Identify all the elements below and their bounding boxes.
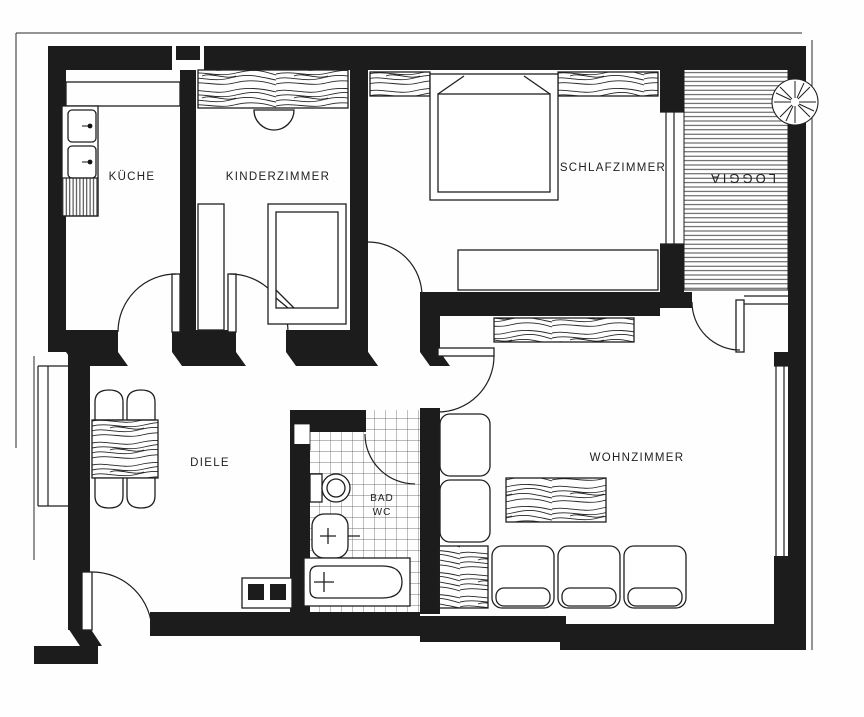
tree-icon <box>772 79 818 125</box>
wall-band-kinder <box>286 330 368 352</box>
single-bed <box>268 204 346 324</box>
kitchen-stove <box>62 178 98 216</box>
room-label-diele: DIELE <box>190 457 230 469</box>
room-label-loggia: LOGGIA <box>708 171 776 186</box>
cabinet-door <box>248 584 264 600</box>
wall-bottom-living-b <box>560 624 800 650</box>
floor-plan-page: KÜCHE KINDERZIMMER SCHLAFZIMMER LOGGIA D… <box>0 0 864 717</box>
wall-bedroom-living <box>424 292 660 316</box>
room-label-kinderzimmer: KINDERZIMMER <box>226 171 330 183</box>
sofa-backrest <box>562 588 616 606</box>
chair <box>95 478 123 508</box>
wall-corridor-corner <box>420 292 440 352</box>
toilet-tank <box>310 474 322 502</box>
wall-niche-sill <box>294 444 310 452</box>
cabinet-door <box>270 584 286 600</box>
wall-bottom-living-a <box>420 616 566 642</box>
wall-bottom-hall <box>150 612 420 636</box>
chair <box>95 390 123 420</box>
coffee-table <box>506 478 606 522</box>
wardrobe <box>198 70 348 108</box>
wardrobe <box>370 72 430 96</box>
wardrobe <box>558 72 658 96</box>
wall-right <box>788 46 806 650</box>
wall-kinder-schlaf <box>350 68 368 352</box>
double-bed <box>430 74 558 200</box>
sofa-backrest <box>628 588 682 606</box>
chair <box>127 390 155 420</box>
wall-balcony-stub <box>684 292 692 308</box>
toilet <box>322 474 350 502</box>
vent-shaft <box>176 46 200 60</box>
armchair <box>440 480 490 542</box>
floor-plan: KÜCHE KINDERZIMMER SCHLAFZIMMER LOGGIA D… <box>0 0 864 717</box>
window-jamb <box>774 352 788 366</box>
room-label-wc: WC <box>373 507 392 518</box>
room-label-kueche: KÜCHE <box>109 171 156 183</box>
side-table <box>438 546 488 608</box>
room-label-schlafzimmer: SCHLAFZIMMER <box>560 162 666 174</box>
wall-foot <box>66 352 128 366</box>
sofa-backrest <box>496 588 550 606</box>
sideboard <box>494 318 634 342</box>
wall-foot <box>286 352 378 366</box>
wall-band-kitchen <box>66 330 118 352</box>
wall-foot <box>172 352 246 366</box>
room-label-wohnzimmer: WOHNZIMMER <box>590 452 685 464</box>
room-label-bad: BAD <box>370 493 394 504</box>
wall-corner-bottom-left <box>34 646 98 664</box>
wall-band-middle <box>172 330 236 352</box>
dining-table <box>92 420 158 478</box>
wall-bath-right <box>420 408 440 614</box>
wall-kueche-kinder <box>180 70 196 332</box>
chair <box>127 478 155 508</box>
wall-loggia-left-lower <box>660 244 684 308</box>
wall-loggia-left-upper <box>660 46 684 112</box>
window-jamb <box>774 558 788 572</box>
armchair <box>440 414 490 476</box>
wall-top <box>48 46 806 70</box>
